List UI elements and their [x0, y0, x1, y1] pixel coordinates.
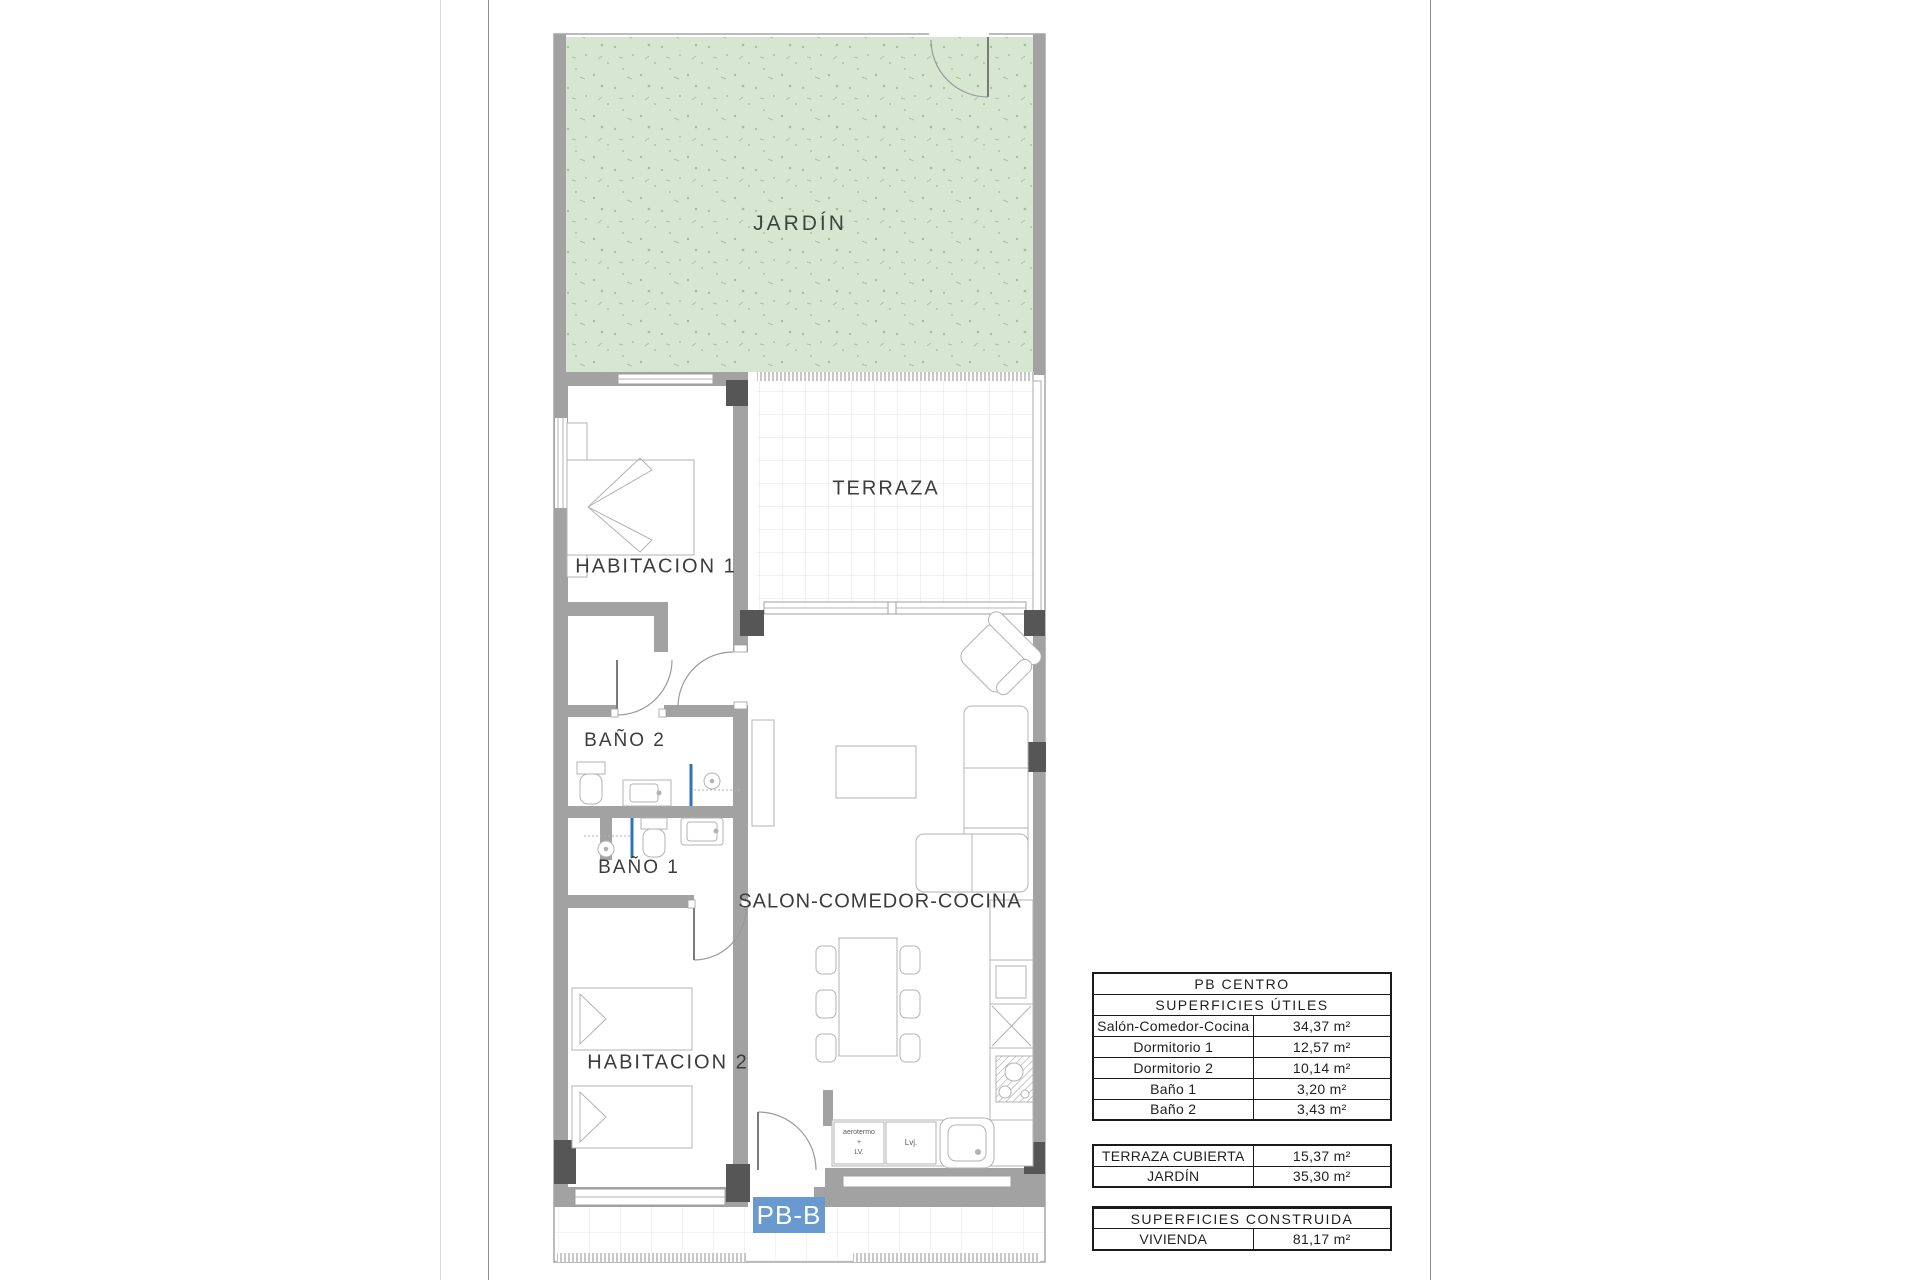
toilet-icon	[641, 818, 667, 829]
aerotermo-label-line1: aerotermo	[843, 1128, 875, 1138]
table-title: PB CENTRO	[1093, 973, 1391, 994]
toilet-icon	[577, 762, 605, 774]
column-terrace-left	[740, 610, 764, 636]
dishwasher-label: Lvj.	[905, 1137, 917, 1149]
row-label: Dormitorio 1	[1093, 1036, 1253, 1057]
useful-areas-table: PB CENTRO SUPERFICIES ÚTILES Salón-Comed…	[1092, 972, 1392, 1121]
table-row: Baño 2 3,43 m²	[1093, 1099, 1391, 1120]
hall-wall-stub	[654, 616, 668, 652]
single-bed-icon	[572, 1086, 692, 1148]
row-label: TERRAZA CUBIERTA	[1093, 1145, 1253, 1166]
nightstand-icon	[567, 423, 587, 460]
floor-plan-drawing	[540, 20, 1060, 1270]
table-row: JARDÍN 35,30 m²	[1093, 1166, 1391, 1187]
bano2-door-arc	[617, 660, 672, 715]
garden-gate-opening	[929, 31, 989, 36]
dining-table-icon	[839, 938, 897, 1056]
chair-icon	[900, 1034, 920, 1062]
row-value: 12,57 m²	[1253, 1036, 1391, 1057]
chair-icon	[816, 946, 836, 974]
coffee-table-icon	[836, 746, 916, 798]
spine-wall-lower	[733, 707, 748, 1187]
pavement-hatch-left	[557, 1253, 746, 1262]
terrace-label: TERRAZA	[832, 478, 939, 501]
kitchen-window	[843, 1176, 1011, 1187]
unit-badge: PB-B	[753, 1197, 825, 1233]
pavement-hatch-right	[853, 1253, 1040, 1262]
column-entrance	[726, 1164, 750, 1202]
entrance-door-arc	[758, 1112, 816, 1170]
bedroom2-label: HABITACION 2	[587, 1052, 748, 1075]
outer-wall-right	[1033, 610, 1045, 1207]
floor-plan-sheet: JARDÍN TERRAZA HABITACION 1 BAÑO 2 BAÑO …	[0, 0, 1920, 1280]
row-value: 35,30 m²	[1253, 1166, 1391, 1187]
table-row: VIVIENDA 81,17 m²	[1093, 1229, 1391, 1250]
aerotermo-label-line3: LV.	[843, 1148, 875, 1158]
tv-sideboard-icon	[752, 720, 774, 826]
single-bed-icon	[572, 988, 692, 1050]
livingroom-label: SALON-COMEDOR-COCINA	[738, 891, 1021, 914]
table-row: Dormitorio 2 10,14 m²	[1093, 1057, 1391, 1078]
hab1-bottom-wall	[554, 602, 668, 616]
hab2-top-wall	[554, 895, 694, 908]
exterior-areas-table: TERRAZA CUBIERTA 15,37 m² JARDÍN 35,30 m…	[1092, 1144, 1392, 1188]
bano-divider-wall	[554, 806, 748, 818]
built-area-table: SUPERFICIES CONSTRUIDA VIVIENDA 81,17 m²	[1092, 1206, 1392, 1251]
row-value: 3,43 m²	[1253, 1099, 1391, 1120]
table-subtitle: SUPERFICIES ÚTILES	[1093, 994, 1391, 1015]
table-row: TERRAZA CUBIERTA 15,37 m²	[1093, 1145, 1391, 1166]
chair-icon	[900, 990, 920, 1018]
column-garden-junction	[726, 380, 748, 406]
row-label: Baño 2	[1093, 1099, 1253, 1120]
row-label: Baño 1	[1093, 1078, 1253, 1099]
bathroom2-label: BAÑO 2	[584, 730, 666, 752]
bano2-top-wall-left	[554, 705, 616, 717]
table-row: Baño 1 3,20 m²	[1093, 1078, 1391, 1099]
row-value: 15,37 m²	[1253, 1145, 1391, 1166]
aerotermo-label: aerotermo + LV.	[843, 1128, 875, 1158]
chair-icon	[816, 1034, 836, 1062]
terrace-rail	[1033, 381, 1041, 611]
row-label: JARDÍN	[1093, 1166, 1253, 1187]
row-value: 3,20 m²	[1253, 1078, 1391, 1099]
row-value: 10,14 m²	[1253, 1057, 1391, 1078]
row-value: 81,17 m²	[1253, 1229, 1391, 1250]
table-row: Dormitorio 1 12,57 m²	[1093, 1036, 1391, 1057]
column-salon-right	[1027, 742, 1046, 772]
terrace-louver-strip	[757, 372, 1034, 381]
row-label: VIVIENDA	[1093, 1229, 1253, 1250]
row-label: Dormitorio 2	[1093, 1057, 1253, 1078]
hall-door-arc	[678, 652, 733, 707]
page-guide-line-left-outer	[440, 0, 441, 1280]
aerotermo-label-line2: +	[843, 1138, 875, 1148]
garden-area	[554, 31, 1045, 375]
column-terrace-right	[1024, 610, 1045, 636]
row-value: 34,37 m²	[1253, 1015, 1391, 1036]
garden-label: JARDÍN	[753, 212, 847, 236]
table-title: SUPERFICIES CONSTRUIDA	[1093, 1208, 1391, 1229]
bathroom1-label: BAÑO 1	[598, 857, 680, 879]
table-row: Salón-Comedor-Cocina 34,37 m²	[1093, 1015, 1391, 1036]
row-label: Salón-Comedor-Cocina	[1093, 1015, 1253, 1036]
page-guide-line-left-inner	[488, 0, 489, 1280]
chair-icon	[900, 946, 920, 974]
fridge-icon	[996, 966, 1026, 998]
page-guide-line-right	[1430, 0, 1431, 1280]
double-bed-icon	[567, 460, 694, 555]
bedroom1-label: HABITACION 1	[575, 556, 736, 579]
chair-icon	[816, 990, 836, 1018]
